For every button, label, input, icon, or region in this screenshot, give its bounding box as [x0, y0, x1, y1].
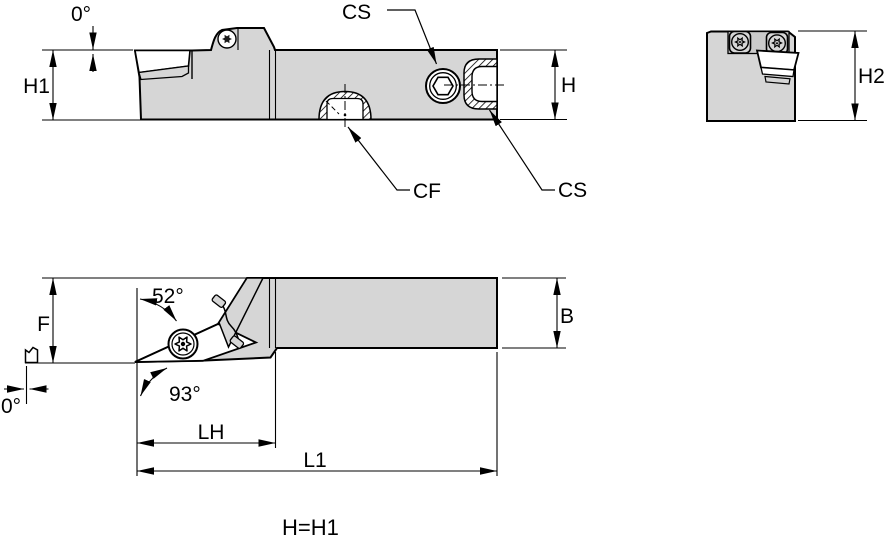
- cf-label: CF: [413, 180, 441, 203]
- top-rake-label: 0°: [71, 3, 91, 26]
- drawing-canvas: H1 0° CS H CF CS: [0, 0, 888, 538]
- callout-cf: CF: [348, 127, 441, 203]
- end-view: H2: [707, 31, 885, 121]
- cs-end-label: CS: [558, 179, 587, 202]
- h2-label: H2: [858, 65, 885, 88]
- l1-label: L1: [303, 449, 326, 472]
- dim-h: H: [500, 50, 576, 120]
- callout-cs-end: CS: [490, 110, 588, 202]
- insert-top-angle-label: 52°: [152, 285, 184, 308]
- equivalence-note: H=H1: [282, 515, 339, 538]
- dim-l1: L1: [137, 352, 497, 476]
- clamp-screw-side-icon: [218, 30, 236, 48]
- dim-top-rake: 0°: [71, 3, 93, 72]
- lh-label: LH: [198, 421, 225, 444]
- bottom-offset-label: 0°: [1, 395, 21, 418]
- side-view: H1 0° CS H CF CS: [23, 1, 587, 203]
- b-label: B: [560, 305, 574, 328]
- top-view: F 0° 52° 93° LH: [1, 278, 574, 476]
- dim-93deg: 93°: [141, 368, 201, 406]
- f-label: F: [37, 313, 50, 336]
- dim-h2: H2: [798, 31, 885, 121]
- insert-profile-symbol: [26, 348, 38, 363]
- h1-label: H1: [23, 75, 50, 98]
- insert-screw-icon: [169, 330, 198, 359]
- dim-bottom-offset: 0°: [1, 366, 49, 418]
- dim-h1: H1: [23, 50, 150, 120]
- hex-set-screw-icon: [426, 69, 460, 103]
- lead-angle-label: 93°: [169, 383, 201, 406]
- torx-screw-left-icon: [730, 32, 751, 54]
- h-label: H: [561, 74, 576, 97]
- dim-52deg: 52°: [140, 285, 184, 321]
- toolholder-drawing-page: H1 0° CS H CF CS: [0, 0, 888, 538]
- cs-top-label: CS: [342, 1, 371, 24]
- dim-b: B: [502, 278, 574, 348]
